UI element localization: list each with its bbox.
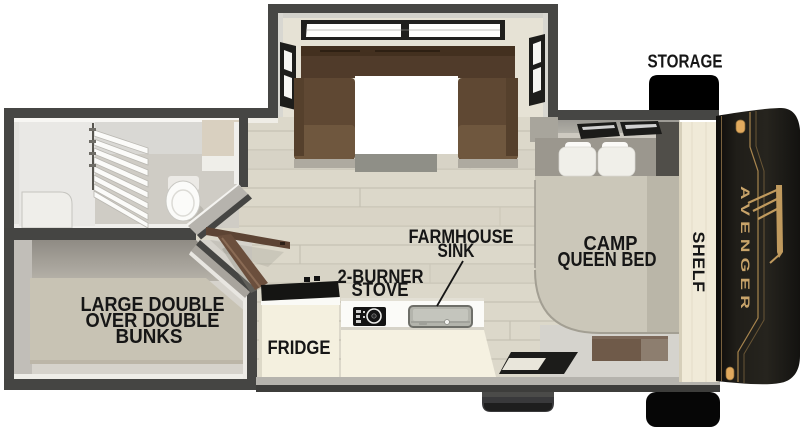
svg-text:BUNKS: BUNKS — [116, 326, 183, 348]
svg-text:QUEEN BED: QUEEN BED — [558, 249, 657, 271]
svg-text:STOVE: STOVE — [352, 280, 409, 301]
svg-text:AVENGER: AVENGER — [738, 186, 750, 314]
svg-text:STORAGE: STORAGE — [648, 52, 723, 72]
svg-text:SINK: SINK — [438, 241, 475, 262]
svg-text:FRIDGE: FRIDGE — [268, 338, 331, 359]
svg-text:SHELF: SHELF — [689, 232, 708, 293]
